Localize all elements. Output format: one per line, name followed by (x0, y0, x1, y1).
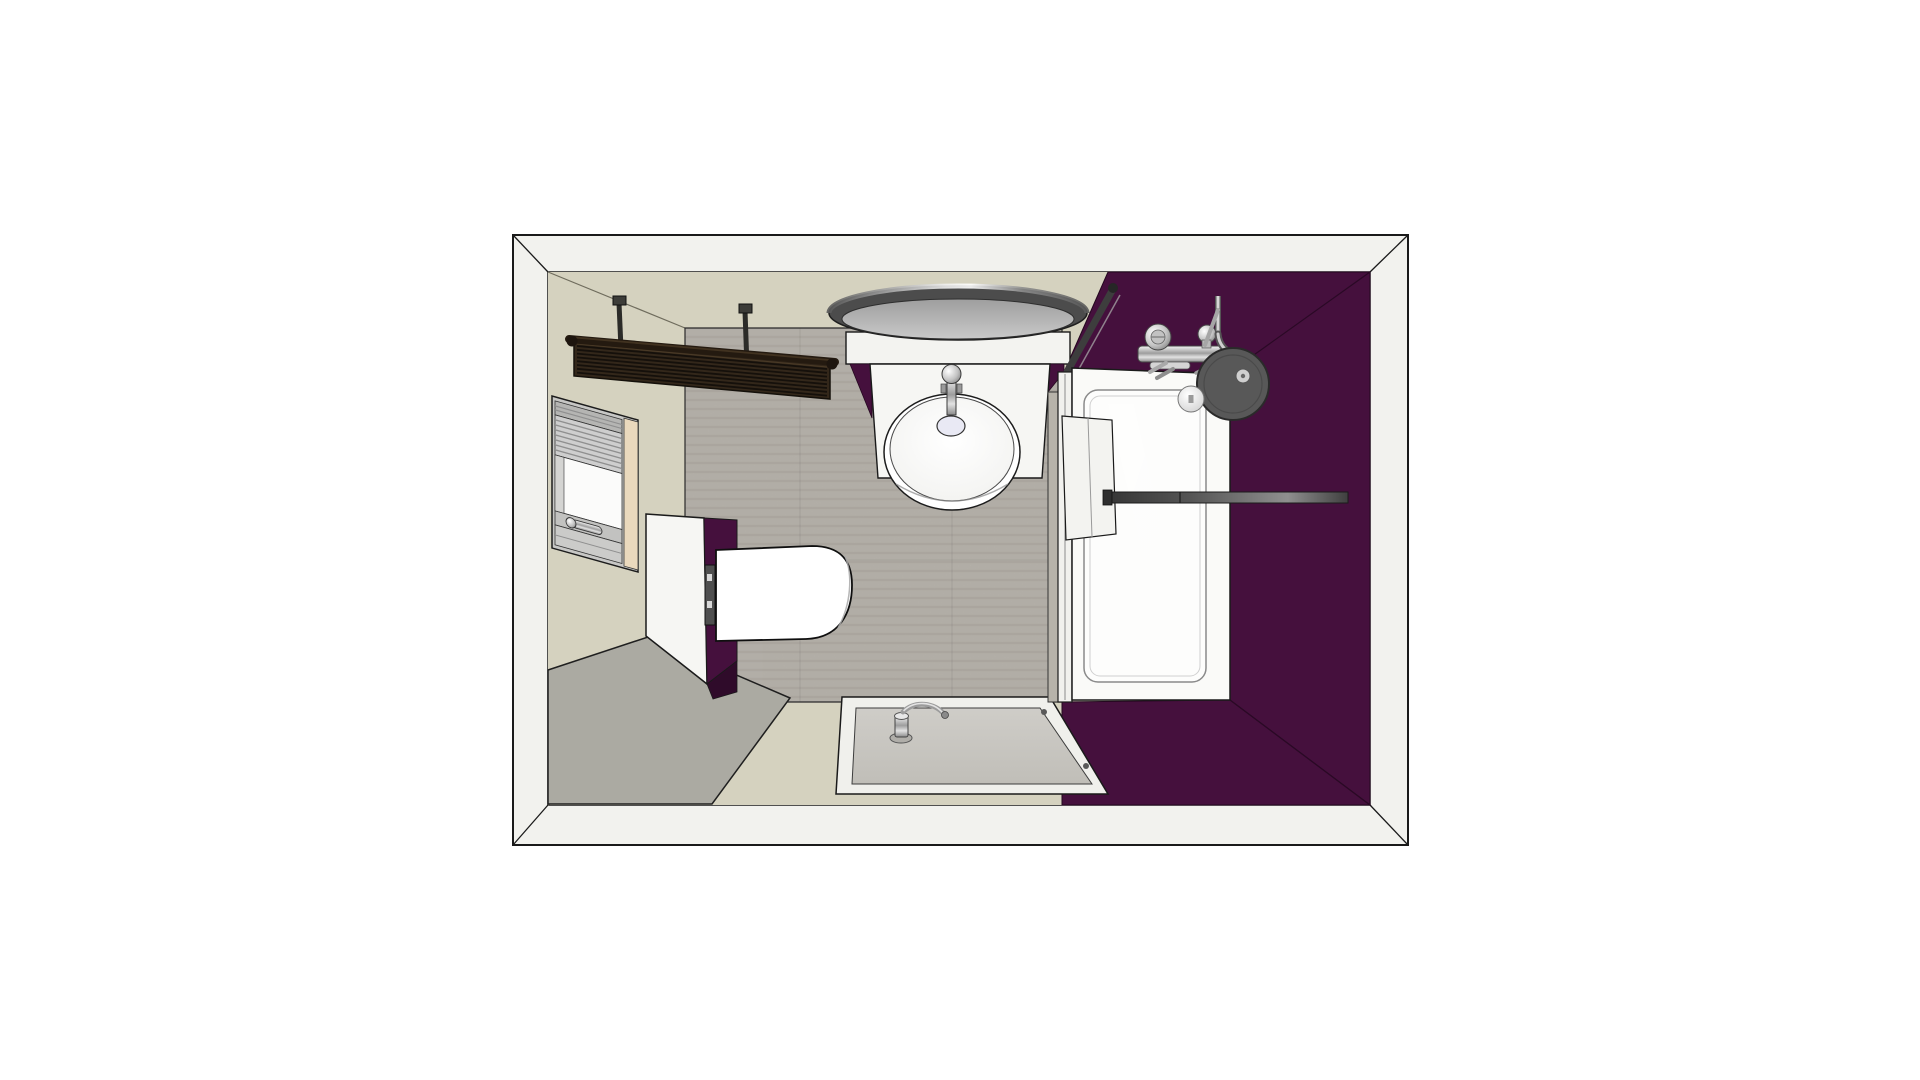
bathroom-render (0, 0, 1920, 1080)
window-reveal (624, 418, 638, 570)
round-ceiling-light (829, 286, 1087, 340)
radiator-mount (739, 304, 752, 313)
render-canvas (0, 0, 1920, 1080)
light-face (842, 299, 1074, 339)
walk-in-shower-enclosure (1048, 368, 1230, 702)
toilet-bowl (716, 546, 852, 641)
flush-button (707, 574, 712, 581)
shower-ball-handle (1178, 386, 1204, 412)
flush-button (707, 601, 712, 608)
towel-bar-cap (1103, 490, 1112, 505)
basin-drain (937, 416, 965, 436)
tray-screw (1083, 763, 1089, 769)
shower-head-disc (1197, 348, 1269, 420)
window-with-blinds (552, 396, 638, 572)
tray-screw (1041, 709, 1047, 715)
radiator-mount (613, 296, 626, 305)
wall-towel-bar (1103, 490, 1348, 505)
